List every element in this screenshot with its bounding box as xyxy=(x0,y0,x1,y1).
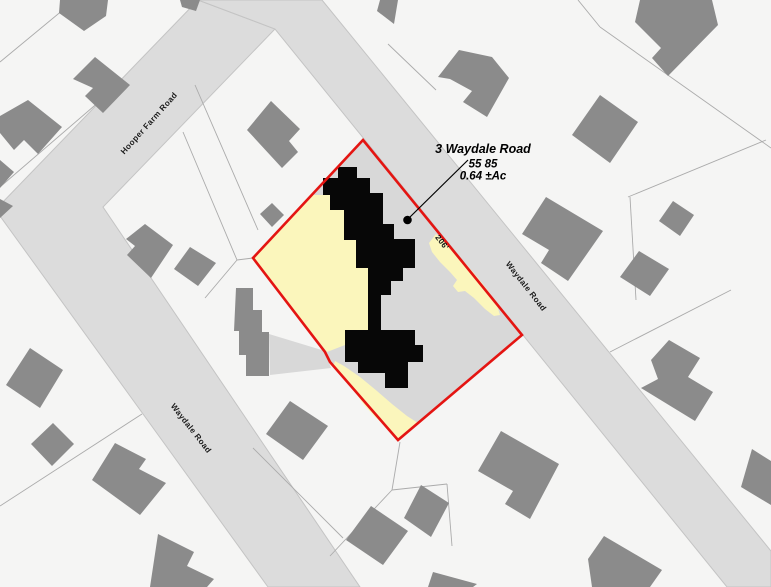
map-geometry-layer xyxy=(0,0,771,587)
parcel-map-svg[interactable]: Hooper Farm Road Waydale Road Waydale Ro… xyxy=(0,0,771,587)
callout-parcel-id: 55 85 xyxy=(469,159,498,171)
callout-address: 3 Waydale Road xyxy=(435,142,531,156)
callout-area: 0.64 ±Ac xyxy=(460,171,507,183)
parcel-map-viewport[interactable]: Hooper Farm Road Waydale Road Waydale Ro… xyxy=(0,0,771,587)
callout-anchor-dot xyxy=(403,216,412,225)
